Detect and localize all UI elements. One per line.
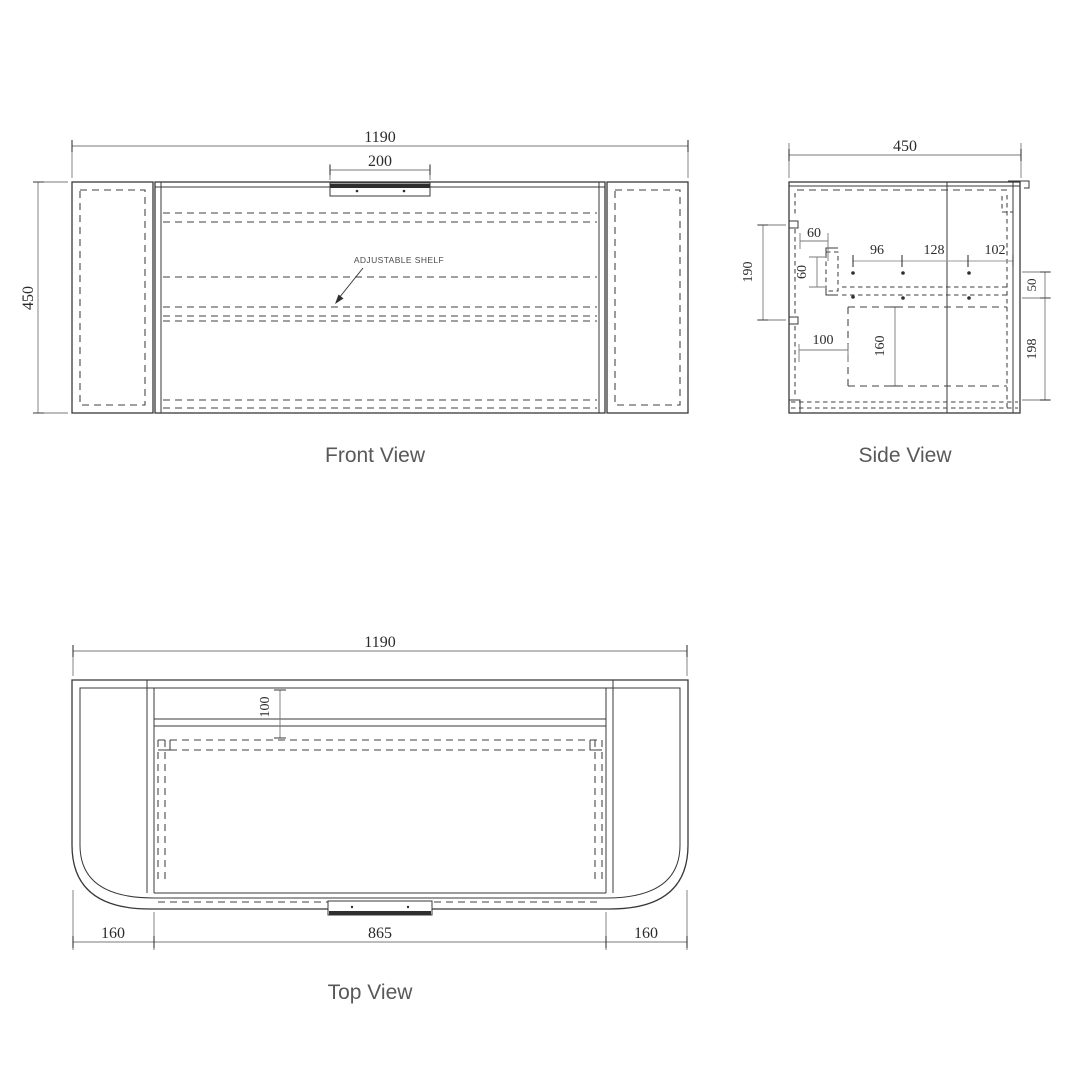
front-handle: [330, 183, 430, 196]
dim-top-back-clearance-text: 100: [258, 697, 273, 718]
dim-top-left-overhang-text: 160: [101, 925, 125, 942]
dim-side-front-gap-text: 50: [1024, 279, 1039, 292]
side-view-label: Side View: [858, 444, 952, 467]
dim-front-handle-width: 200: [330, 153, 430, 180]
front-right-end-panel: [607, 182, 688, 413]
dim-side-depth: 450: [789, 138, 1021, 178]
dim-side-pitch-b-text: 128: [924, 243, 945, 258]
dim-side-top-offset-v-text: 60: [795, 265, 810, 279]
top-view-label: Top View: [328, 981, 414, 1004]
dim-front-overall-width-text: 1190: [364, 129, 395, 146]
dim-side-pitch-c-text: 102: [985, 243, 1006, 258]
adjustable-shelf-text: ADJUSTABLE SHELF: [354, 255, 444, 265]
front-view-label: Front View: [325, 444, 426, 467]
dim-side-front-gap: 50: [1022, 272, 1051, 298]
dim-top-overall-width: 1190: [73, 634, 687, 676]
dim-side-back-drop: 190: [741, 225, 786, 320]
front-view-drawing: 1190 200 450: [20, 129, 688, 467]
side-cabinet-outline: [789, 181, 1029, 413]
dim-front-height-text: 450: [20, 286, 37, 310]
side-view-drawing: 450: [741, 138, 1051, 467]
dim-front-height: 450: [20, 182, 68, 413]
top-handle: [328, 901, 432, 915]
top-view-drawing: 1190 100: [72, 634, 688, 1004]
dim-side-lower-drop: 198: [1022, 298, 1051, 400]
dim-side-depth-text: 450: [893, 138, 917, 155]
dim-top-right-overhang-text: 160: [634, 925, 658, 942]
dim-top-carcass-width-text: 865: [368, 925, 392, 942]
dim-side-base-offset-text: 100: [813, 333, 834, 348]
dim-front-handle-width-text: 200: [368, 153, 392, 170]
front-left-end-panel: [72, 182, 153, 413]
dim-side-pitch-a-text: 96: [870, 243, 884, 258]
dim-top-overall-width-text: 1190: [364, 634, 395, 651]
top-benchtop-outline: [72, 680, 688, 909]
dim-side-back-drop-text: 190: [741, 262, 756, 283]
dim-side-lower-drop-text: 198: [1025, 339, 1040, 360]
technical-drawing-canvas: 1190 200 450: [0, 0, 1080, 1080]
dim-side-drawer-depth-text: 160: [873, 336, 888, 357]
front-cabinet-body: [155, 182, 605, 413]
dim-side-top-offset-h-text: 60: [807, 226, 821, 241]
